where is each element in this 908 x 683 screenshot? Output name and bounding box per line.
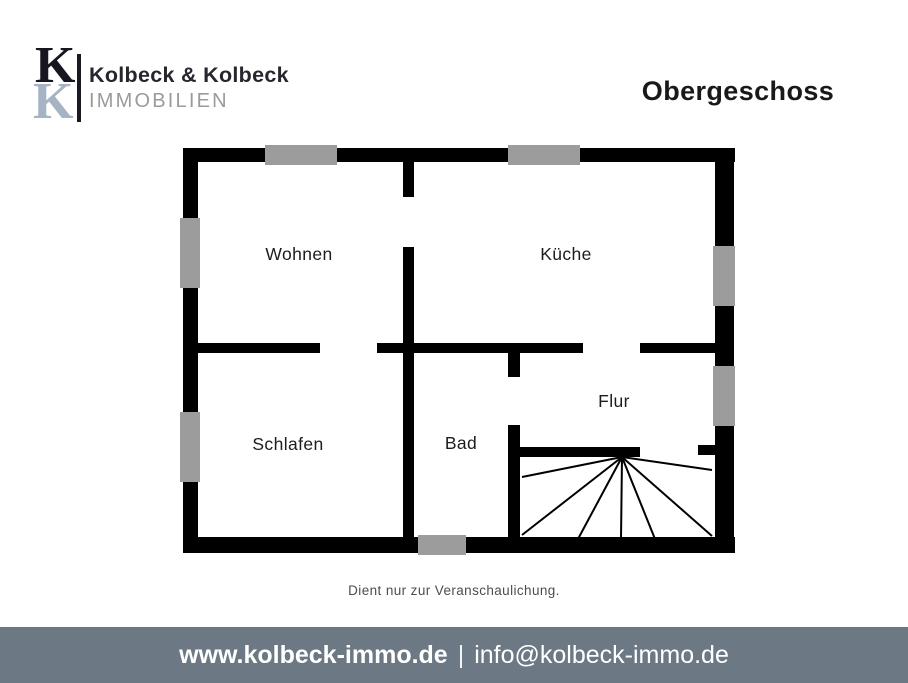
stair-tread — [522, 457, 622, 477]
footer-website: www.kolbeck-immo.de — [179, 641, 448, 670]
room-label-schlafen: Schlafen — [252, 434, 323, 454]
footer-email: info@kolbeck-immo.de — [474, 641, 729, 670]
window-top-right — [508, 145, 580, 165]
wall-mid-left — [198, 343, 320, 353]
room-label-flur: Flur — [598, 391, 630, 411]
floorplan-page: K K Kolbeck & Kolbeck IMMOBILIEN Oberges… — [0, 0, 908, 683]
stair-tread — [622, 457, 655, 539]
wall-mid-right — [640, 343, 715, 353]
wall-bad-lower — [508, 425, 520, 537]
floorplan-svg: Wohnen Küche Schlafen Bad Flur — [175, 140, 745, 560]
room-label-kueche: Küche — [540, 244, 592, 264]
company-name: Kolbeck & Kolbeck — [89, 63, 289, 88]
floorplan-drawing: Wohnen Küche Schlafen Bad Flur — [175, 140, 745, 560]
room-label-wohnen: Wohnen — [265, 244, 332, 264]
stair-tread — [522, 457, 622, 535]
footer-separator: | — [458, 641, 465, 670]
window-left-upper — [180, 218, 200, 288]
logo-divider — [77, 54, 81, 122]
window-left-lower — [180, 412, 200, 482]
wall-wohnen-kueche-main — [403, 247, 414, 537]
wall-stair-right-stub — [698, 445, 715, 455]
room-label-bad: Bad — [445, 433, 477, 453]
stair-tread — [578, 457, 622, 539]
logo-k-bottom: K — [33, 76, 73, 128]
window-right-upper — [713, 246, 735, 306]
wall-left — [183, 148, 198, 553]
window-top-left — [265, 145, 337, 165]
wall-bad-upper-stub — [508, 343, 520, 377]
wall-wohnen-kueche-stub — [403, 162, 414, 197]
window-right-lower — [713, 366, 735, 426]
wall-right — [715, 148, 734, 553]
page-title: Obergeschoss — [598, 76, 878, 107]
company-subtitle: IMMOBILIEN — [89, 90, 229, 113]
disclaimer-text: Dient nur zur Veranschaulichung. — [0, 583, 908, 598]
footer-bar: www.kolbeck-immo.de | info@kolbeck-immo.… — [0, 627, 908, 683]
wall-mid-center — [377, 343, 583, 353]
wall-stair-top — [508, 447, 640, 457]
stair-tread — [621, 457, 622, 539]
door-bottom — [418, 535, 466, 555]
company-logo: K K Kolbeck & Kolbeck IMMOBILIEN — [33, 48, 333, 132]
staircase — [522, 457, 712, 539]
